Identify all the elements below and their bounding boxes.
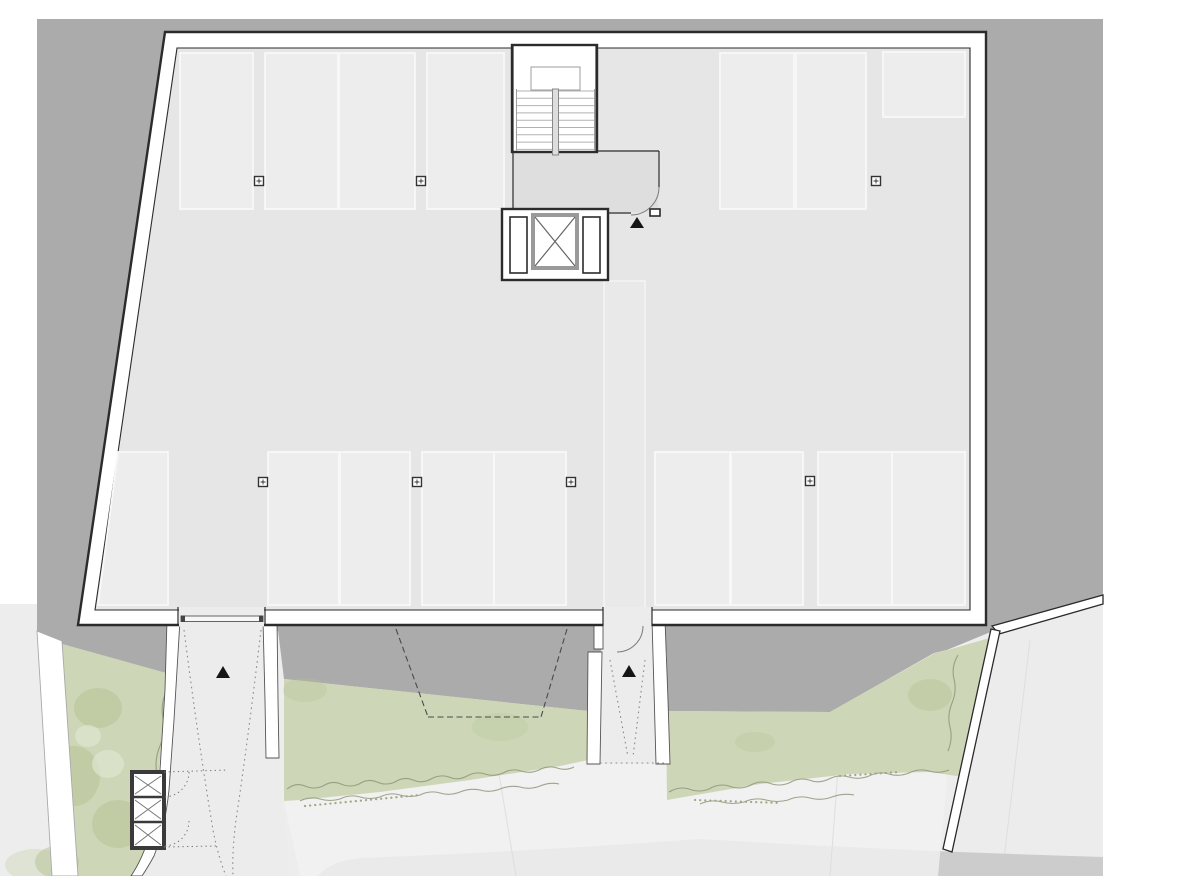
parking-stall xyxy=(655,452,730,605)
floor-plan-drawing xyxy=(0,0,1200,876)
shaft-right xyxy=(583,217,600,273)
parking-stall xyxy=(731,452,803,605)
garage-door xyxy=(181,616,263,622)
stair-stringer xyxy=(553,89,559,155)
parking-stall xyxy=(422,452,494,605)
parking-stall xyxy=(180,53,253,209)
pedestrian-opening xyxy=(604,607,652,627)
garage-door-cap xyxy=(181,616,185,623)
column-marker xyxy=(255,177,264,186)
parking-stall xyxy=(340,452,410,605)
site-plan-canvas xyxy=(0,0,1200,876)
column-marker xyxy=(872,177,881,186)
shaft-left xyxy=(510,217,527,273)
canopy xyxy=(908,679,952,711)
column-marker xyxy=(259,478,268,487)
column-marker xyxy=(567,478,576,487)
parking-stall xyxy=(268,452,339,605)
parking-stall xyxy=(883,52,965,117)
door-leaf xyxy=(650,209,660,216)
column-marker xyxy=(417,177,426,186)
canopy xyxy=(735,732,775,752)
canopy xyxy=(283,678,327,702)
column-marker xyxy=(806,477,815,486)
lobby-floor xyxy=(513,151,658,212)
parking-stall xyxy=(720,53,794,209)
parking-stall xyxy=(339,53,415,209)
parking-stall xyxy=(265,53,338,209)
parking-stall xyxy=(494,452,566,605)
parking-stall xyxy=(796,53,866,209)
canopy-highlight xyxy=(75,725,101,747)
parking-stall xyxy=(427,53,504,209)
driveway-wall-right xyxy=(263,620,279,758)
walkway-band xyxy=(604,281,645,608)
passage-wall-left xyxy=(587,652,602,764)
parking-stall xyxy=(892,452,965,605)
garage-door-cap xyxy=(259,616,263,623)
canopy-highlight xyxy=(92,750,124,778)
elevator-core xyxy=(502,209,608,280)
parking-stall xyxy=(818,452,892,605)
column-marker xyxy=(413,478,422,487)
canopy xyxy=(74,688,122,728)
